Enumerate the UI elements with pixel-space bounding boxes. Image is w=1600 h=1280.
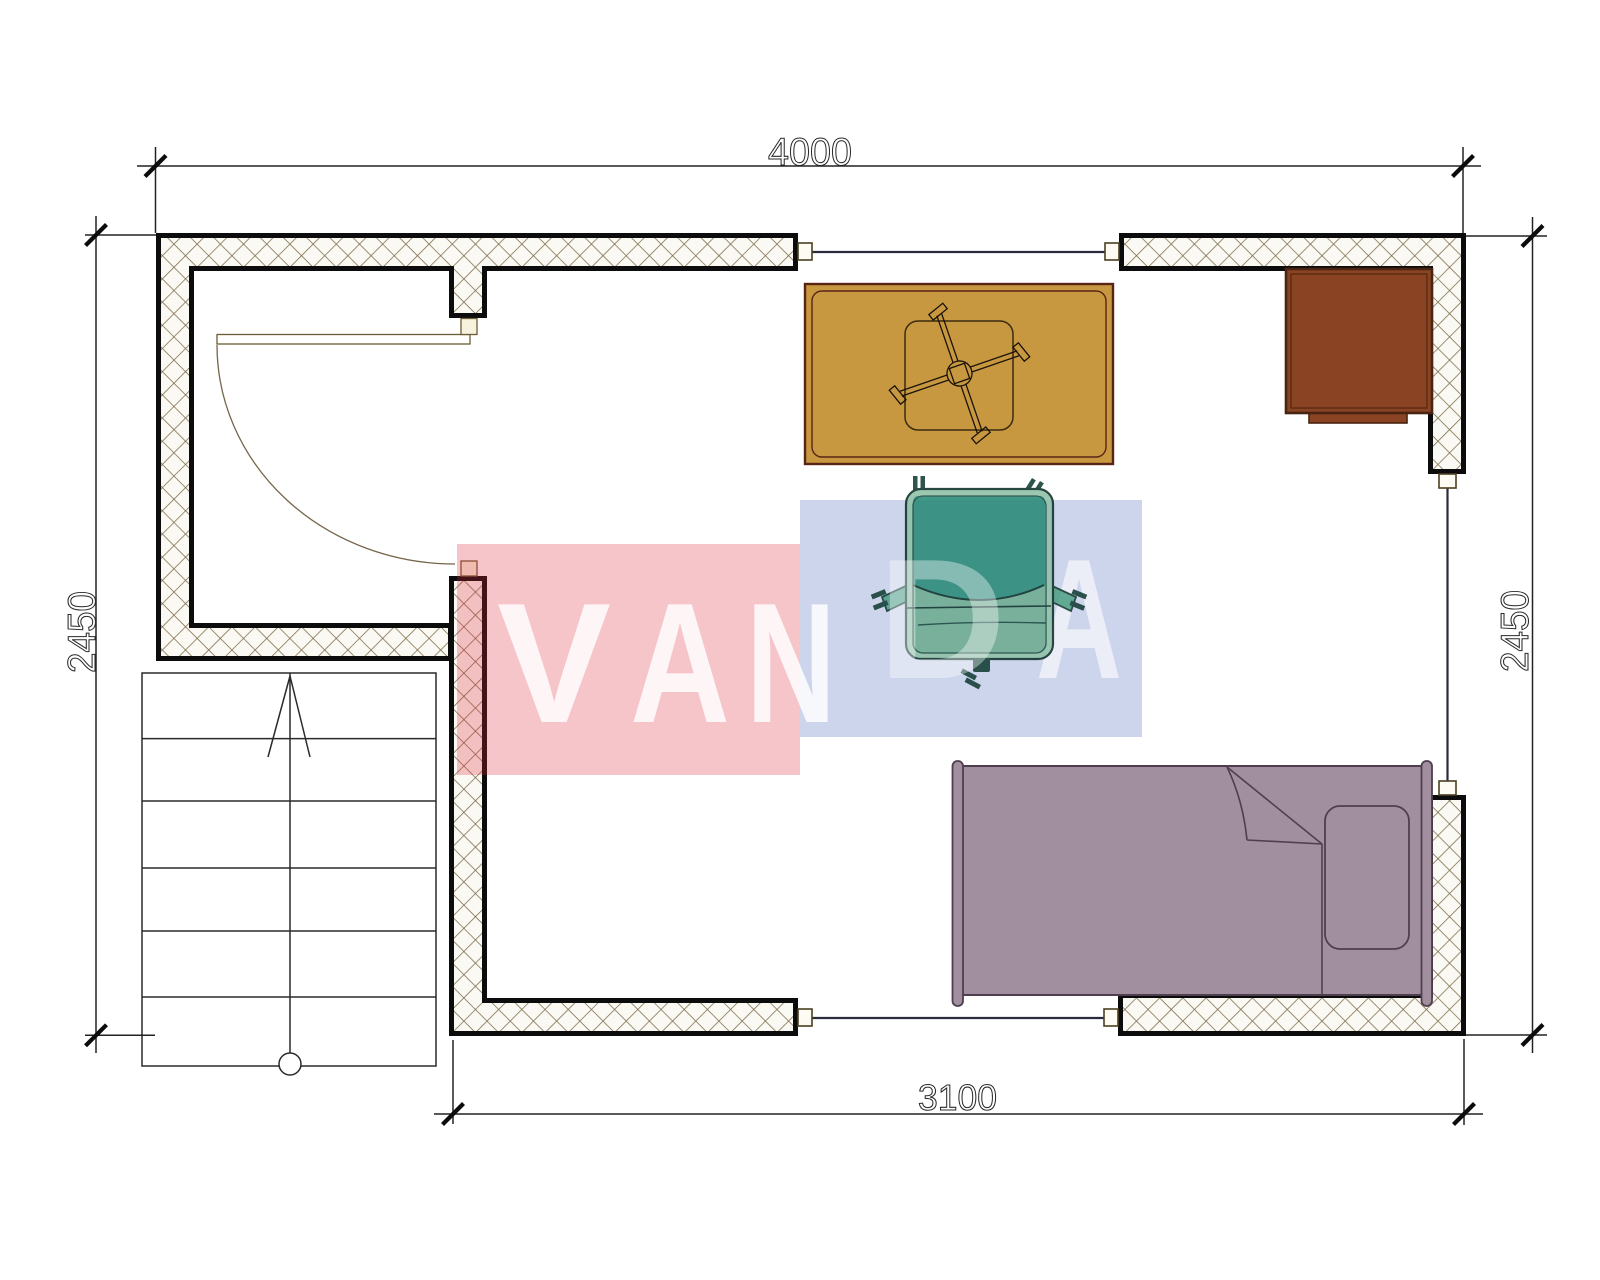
- svg-text:V: V: [497, 568, 611, 759]
- svg-text:2450: 2450: [61, 591, 104, 673]
- svg-text:2450: 2450: [1494, 590, 1537, 672]
- svg-text:A: A: [630, 568, 730, 759]
- svg-text:N: N: [746, 568, 836, 759]
- svg-text:3100: 3100: [918, 1077, 997, 1118]
- svg-text:4000: 4000: [768, 131, 852, 174]
- svg-text:D: D: [878, 524, 1006, 715]
